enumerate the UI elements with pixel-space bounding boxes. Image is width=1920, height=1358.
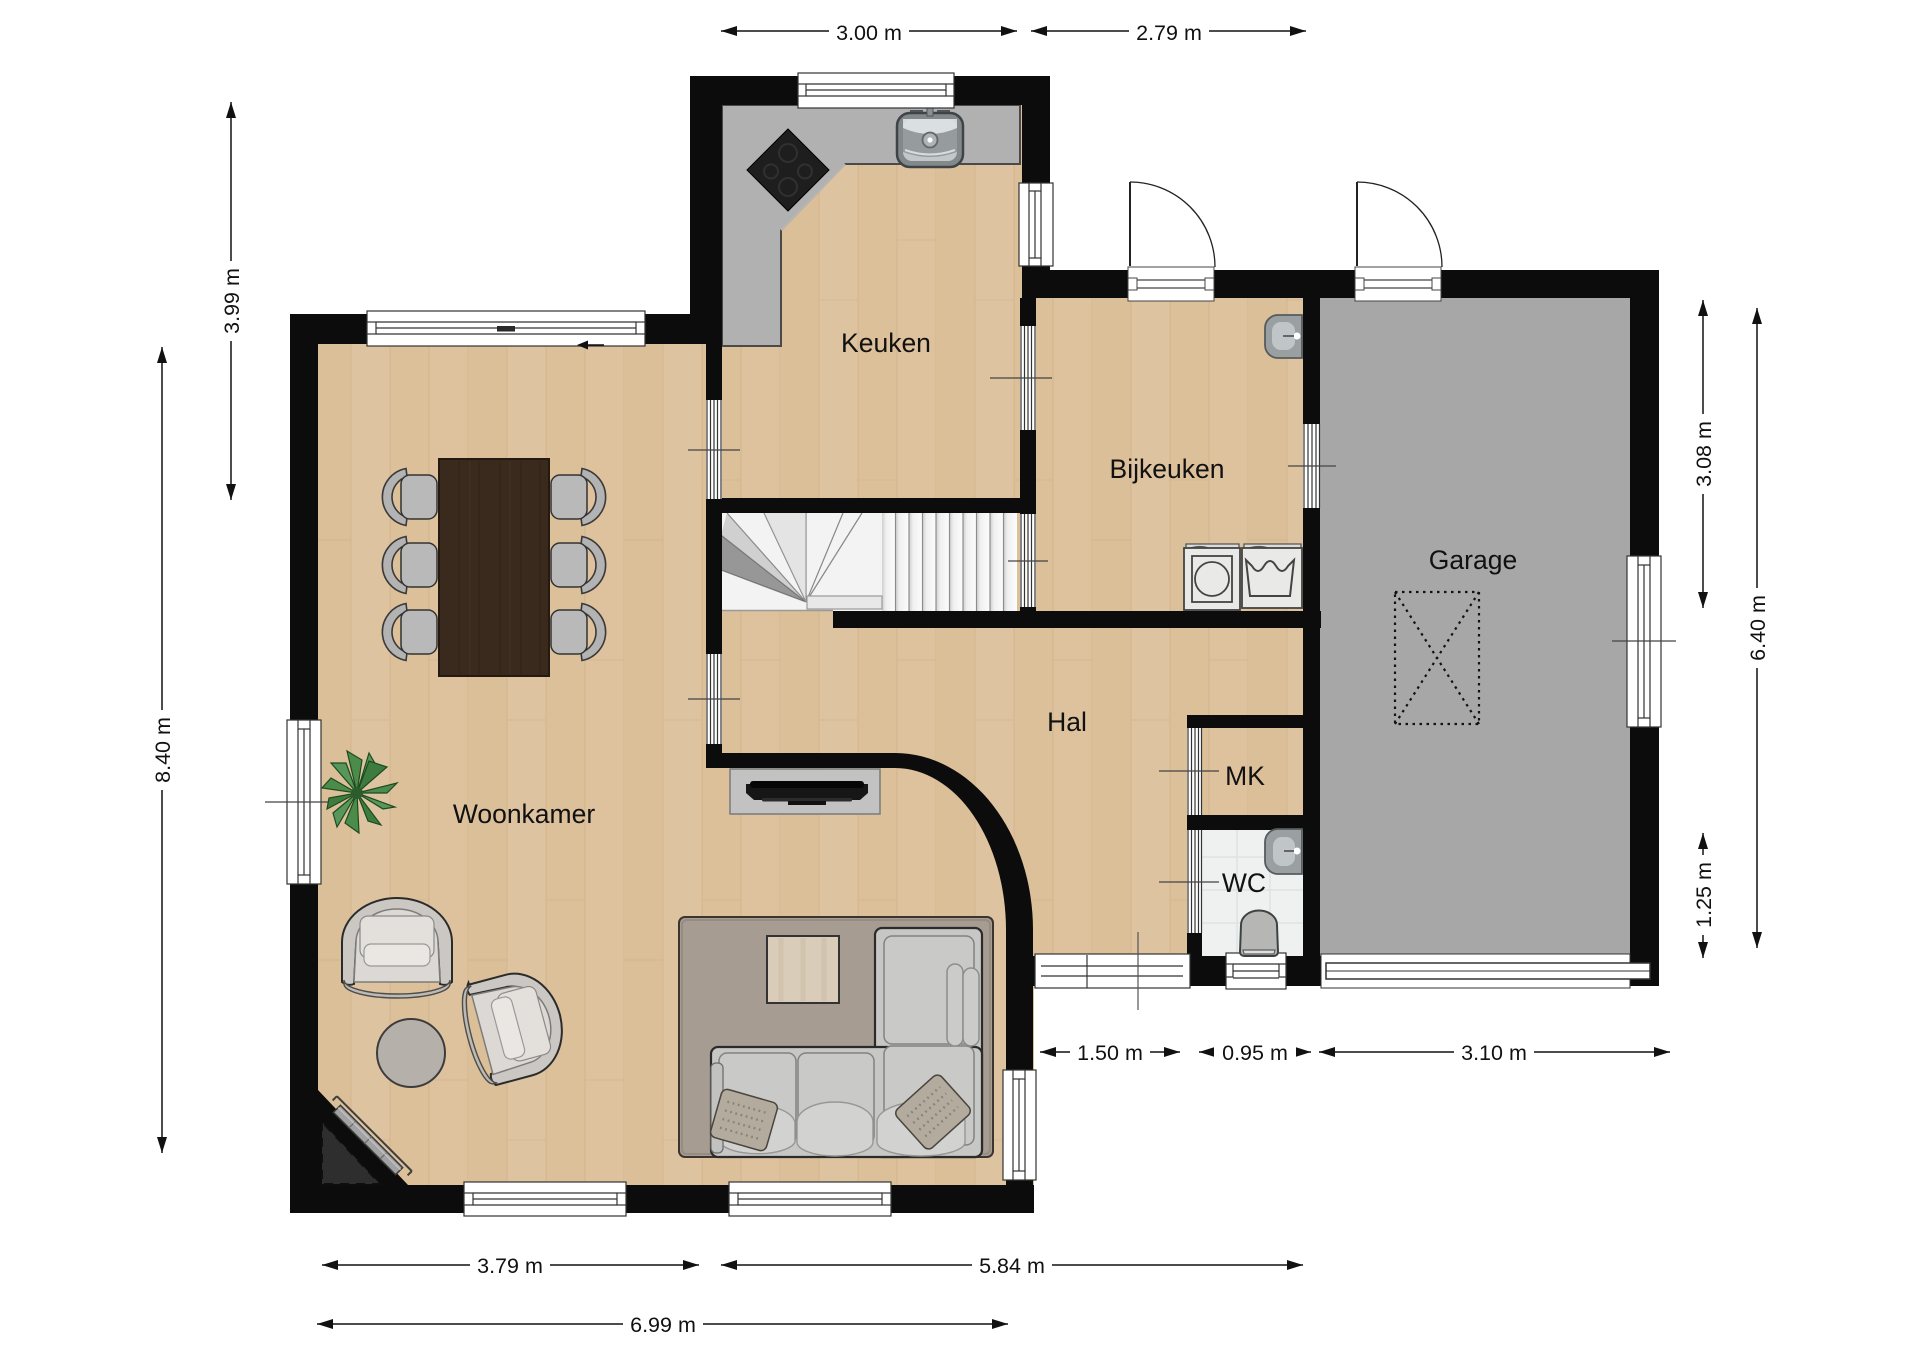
svg-text:MK: MK <box>1225 761 1265 791</box>
svg-text:8.40 m: 8.40 m <box>151 717 175 783</box>
svg-text:2.79 m: 2.79 m <box>1136 21 1202 45</box>
svg-text:Woonkamer: Woonkamer <box>453 799 596 829</box>
svg-text:3.08 m: 3.08 m <box>1692 421 1716 487</box>
svg-text:Keuken: Keuken <box>841 328 931 358</box>
svg-text:Bijkeuken: Bijkeuken <box>1110 454 1225 484</box>
svg-text:Hal: Hal <box>1047 707 1087 737</box>
svg-text:Garage: Garage <box>1429 545 1517 575</box>
svg-text:WC: WC <box>1222 868 1266 898</box>
svg-text:0.95 m: 0.95 m <box>1222 1041 1288 1065</box>
svg-text:6.40 m: 6.40 m <box>1746 595 1770 661</box>
svg-text:3.00 m: 3.00 m <box>836 21 902 45</box>
svg-text:3.99 m: 3.99 m <box>220 268 244 334</box>
svg-text:1.25 m: 1.25 m <box>1692 862 1716 928</box>
svg-text:3.79 m: 3.79 m <box>477 1254 543 1278</box>
svg-text:3.10 m: 3.10 m <box>1461 1041 1527 1065</box>
svg-text:1.50 m: 1.50 m <box>1077 1041 1143 1065</box>
svg-text:5.84 m: 5.84 m <box>979 1254 1045 1278</box>
svg-text:6.99 m: 6.99 m <box>630 1313 696 1337</box>
